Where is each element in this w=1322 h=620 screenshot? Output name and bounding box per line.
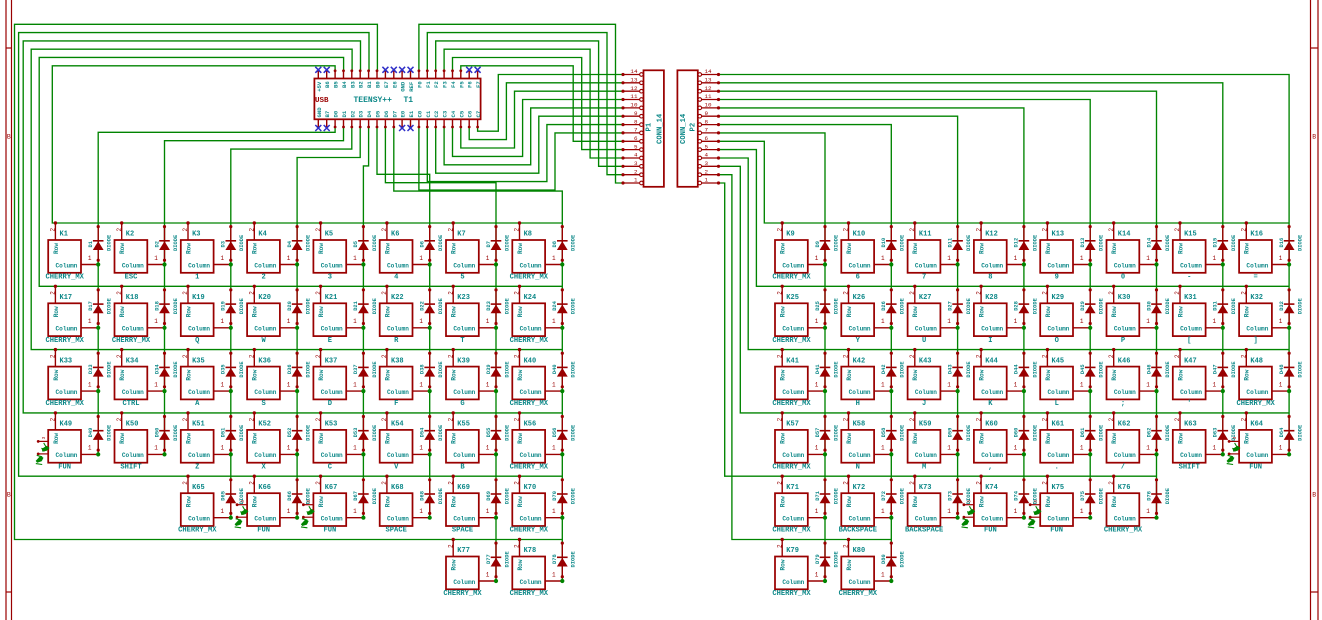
svg-text:K4: K4 [258,231,266,239]
svg-text:2: 2 [909,417,916,421]
svg-text:F1: F1 [425,81,432,88]
svg-text:1: 1 [947,318,951,325]
svg-text:Row: Row [517,433,524,444]
svg-text:Row: Row [1111,433,1118,444]
svg-text:D0: D0 [333,110,340,117]
svg-text:2: 2 [315,228,322,232]
svg-text:12: 12 [705,85,713,92]
svg-text:[: [ [1187,337,1191,345]
svg-text:Row: Row [119,369,126,380]
svg-text:1: 1 [1212,318,1216,325]
svg-text:K62: K62 [1118,421,1131,429]
svg-text:FUN: FUN [984,527,997,535]
svg-text:1: 1 [353,255,357,262]
svg-text:G: G [460,400,464,408]
svg-text:CHERRY_MX: CHERRY_MX [510,400,549,408]
svg-text:13: 13 [705,77,713,84]
svg-text:Column: Column [520,516,542,523]
svg-text:Column: Column [981,516,1003,523]
svg-text:H: H [856,400,860,408]
svg-text:9: 9 [705,110,709,117]
svg-text:1: 1 [1080,318,1084,325]
svg-text:2: 2 [1108,291,1115,295]
svg-text:D39: D39 [486,364,492,374]
svg-text:Row: Row [979,369,986,380]
svg-text:1: 1 [1279,381,1283,388]
svg-text:Row: Row [318,243,325,254]
svg-text:B3: B3 [349,81,356,88]
svg-text:K8: K8 [524,231,532,239]
svg-text:K45: K45 [1052,357,1065,365]
svg-text:DIODE: DIODE [571,487,577,504]
svg-text:Column: Column [915,389,937,396]
svg-text:3: 3 [1033,500,1039,503]
svg-text:DIODE: DIODE [372,361,378,378]
svg-text:B: B [1312,492,1316,499]
svg-text:B: B [7,134,11,141]
svg-text:D62: D62 [1146,428,1152,438]
svg-text:T1: T1 [404,96,414,105]
svg-text:Row: Row [451,433,458,444]
svg-text:1: 1 [815,445,819,452]
svg-text:1: 1 [815,508,819,515]
svg-text:K44: K44 [985,357,998,365]
svg-text:Row: Row [846,243,853,254]
svg-text:K47: K47 [1184,357,1197,365]
svg-text:1: 1 [1014,381,1018,388]
svg-text:Row: Row [185,433,192,444]
svg-text:Row: Row [846,369,853,380]
svg-text:DIODE: DIODE [107,361,113,378]
svg-text:K36: K36 [258,357,271,365]
svg-text:DIODE: DIODE [1032,297,1038,314]
svg-text:F0: F0 [416,81,423,88]
svg-text:Row: Row [912,433,919,444]
svg-text:5: 5 [705,143,709,150]
svg-text:DIODE: DIODE [571,361,577,378]
svg-text:Row: Row [53,243,60,254]
svg-text:1: 1 [1212,255,1216,262]
svg-text:K29: K29 [1052,294,1065,302]
svg-text:3: 3 [634,160,638,167]
svg-text:1: 1 [486,255,490,262]
svg-text:2: 2 [975,481,982,485]
svg-text:F2: F2 [433,81,440,88]
svg-text:K80: K80 [853,547,866,555]
svg-text:CHERRY_MX: CHERRY_MX [510,463,549,471]
svg-text:Row: Row [252,433,259,444]
svg-text:DIODE: DIODE [966,297,972,314]
svg-text:1: 1 [815,255,819,262]
svg-text:2: 2 [634,168,638,175]
svg-text:1: 1 [1146,445,1150,452]
svg-text:1: 1 [486,381,490,388]
svg-text:2: 2 [776,544,783,548]
svg-text:1: 1 [1080,508,1084,515]
svg-text:K56: K56 [524,421,537,429]
svg-text:1: 1 [815,571,819,578]
svg-text:K21: K21 [325,294,338,302]
svg-text:K77: K77 [457,547,470,555]
svg-text:J: J [922,400,926,408]
svg-text:2: 2 [1042,354,1049,358]
svg-text:C4: C4 [450,110,457,117]
svg-text:2: 2 [1241,291,1248,295]
svg-text:1: 1 [220,508,224,515]
svg-text:Column: Column [981,326,1003,333]
svg-text:1: 1 [88,255,92,262]
svg-text:1: 1 [552,508,556,515]
svg-text:Row: Row [1177,369,1184,380]
svg-text:D: D [328,400,332,408]
svg-text:K31: K31 [1184,294,1197,302]
svg-text:2: 2 [909,228,916,232]
svg-text:11: 11 [630,93,638,100]
svg-text:1: 1 [1014,508,1018,515]
svg-text:3: 3 [967,500,973,503]
svg-text:Column: Column [1180,452,1202,459]
svg-text:SHIFT: SHIFT [1179,463,1201,471]
svg-text:1: 1 [634,177,638,184]
svg-text:K43: K43 [919,357,932,365]
svg-text:Row: Row [53,369,60,380]
svg-text:Row: Row [1045,243,1052,254]
svg-text:2: 2 [116,228,123,232]
svg-text:Row: Row [1045,306,1052,317]
svg-text:C: C [328,463,333,471]
svg-text:,: , [988,463,992,471]
svg-text:D77: D77 [486,554,492,564]
svg-text:D8: D8 [552,241,558,247]
svg-text:D3: D3 [358,110,365,117]
svg-text:DIODE: DIODE [1165,361,1171,378]
svg-text:DIODE: DIODE [900,234,906,251]
svg-text:Row: Row [119,243,126,254]
svg-text:F: F [394,400,398,408]
svg-text:D22: D22 [420,301,426,311]
svg-text:7: 7 [922,274,926,282]
svg-text:1: 1 [815,318,819,325]
svg-text:DIODE: DIODE [306,297,312,314]
svg-text:K10: K10 [853,231,866,239]
svg-text:CHERRY_MX: CHERRY_MX [1236,400,1275,408]
svg-text:D4: D4 [366,110,373,117]
svg-text:8: 8 [705,118,709,125]
svg-text:B5: B5 [333,81,340,88]
svg-text:Row: Row [384,433,391,444]
svg-text:CHERRY_MX: CHERRY_MX [112,337,151,345]
svg-text:1: 1 [88,445,92,452]
svg-text:CHERRY_MX: CHERRY_MX [772,463,811,471]
svg-text:DIODE: DIODE [833,361,839,378]
svg-text:DIODE: DIODE [107,424,113,441]
svg-text:2: 2 [514,354,521,358]
svg-text:D2: D2 [349,110,356,117]
svg-text:DIODE: DIODE [438,487,444,504]
svg-text:Row: Row [1177,433,1184,444]
svg-text:B4: B4 [341,81,348,88]
svg-text:Row: Row [185,496,192,507]
svg-text:FUN: FUN [324,527,337,535]
svg-text:K3: K3 [192,231,200,239]
svg-text:D74: D74 [1014,490,1020,500]
svg-text:D5: D5 [375,110,382,117]
svg-text:K15: K15 [1184,231,1197,239]
svg-text:Column: Column [1180,262,1202,269]
svg-text:Row: Row [1111,369,1118,380]
svg-text:1: 1 [353,381,357,388]
svg-text:Column: Column [188,326,210,333]
svg-text:2: 2 [1174,228,1181,232]
svg-text:CHERRY_MX: CHERRY_MX [510,527,549,535]
svg-text:K19: K19 [192,294,205,302]
svg-text:Column: Column [387,516,409,523]
svg-text:D45: D45 [1080,364,1086,374]
svg-text:K63: K63 [1184,421,1197,429]
svg-text:13: 13 [630,77,638,84]
svg-text:Column: Column [1246,262,1268,269]
svg-text:1: 1 [486,445,490,452]
svg-text:FUN: FUN [1050,527,1063,535]
svg-text:1: 1 [1279,318,1283,325]
svg-text:E0: E0 [400,110,407,117]
svg-text:1: 1 [1080,445,1084,452]
svg-text:4: 4 [705,152,709,159]
svg-text:Column: Column [520,262,542,269]
svg-text:2: 2 [514,417,521,421]
svg-text:2: 2 [1108,228,1115,232]
svg-text:1: 1 [947,445,951,452]
svg-text:C6: C6 [467,110,474,117]
svg-text:DIODE: DIODE [966,234,972,251]
svg-text:Column: Column [849,579,871,586]
svg-text:DIODE: DIODE [438,424,444,441]
svg-text:2: 2 [1174,291,1181,295]
svg-text:USB: USB [315,97,329,105]
svg-text:2: 2 [975,291,982,295]
svg-text:2: 2 [50,354,57,358]
svg-text:Column: Column [981,452,1003,459]
svg-text:K41: K41 [786,357,799,365]
svg-text:X: X [261,463,266,471]
svg-text:D61: D61 [1080,428,1086,438]
svg-text:DIODE: DIODE [504,487,510,504]
svg-text:DIODE: DIODE [504,551,510,568]
svg-text:D35: D35 [221,364,227,374]
svg-text:D15: D15 [1213,238,1219,248]
svg-text:2: 2 [116,291,123,295]
svg-text:DIODE: DIODE [173,234,179,251]
svg-text:2: 2 [1042,291,1049,295]
svg-text:D13: D13 [1080,238,1086,248]
svg-text:2: 2 [843,354,850,358]
svg-text:Column: Column [849,389,871,396]
svg-text:10: 10 [630,102,638,109]
svg-text:2: 2 [182,481,189,485]
svg-text:1: 1 [947,255,951,262]
svg-text:2: 2 [776,481,783,485]
svg-text:7: 7 [705,127,709,134]
svg-text:1: 1 [220,381,224,388]
svg-text:D50: D50 [154,428,160,438]
svg-text:Row: Row [912,496,919,507]
svg-text:Row: Row [318,496,325,507]
svg-text:DIODE: DIODE [900,551,906,568]
svg-text:2: 2 [116,417,123,421]
svg-text:1: 1 [154,255,158,262]
svg-text:B: B [460,463,465,471]
svg-text:DIODE: DIODE [1099,424,1105,441]
svg-text:Column: Column [453,326,475,333]
svg-text:K58: K58 [853,421,866,429]
svg-text:L: L [1055,400,1059,408]
svg-text:2: 2 [381,354,388,358]
svg-text:K34: K34 [126,357,139,365]
svg-text:Row: Row [780,369,787,380]
svg-text:A: A [195,400,200,408]
svg-text:Row: Row [384,496,391,507]
svg-text:2: 2 [315,291,322,295]
svg-text:Column: Column [321,452,343,459]
svg-text:2: 2 [1042,481,1049,485]
svg-text:E7: E7 [383,81,390,88]
svg-text:1: 1 [881,381,885,388]
svg-text:Row: Row [384,306,391,317]
svg-text:D18: D18 [154,301,160,311]
svg-text:2: 2 [249,481,256,485]
svg-text:2: 2 [182,228,189,232]
svg-text:D64: D64 [1279,427,1285,437]
svg-text:K64: K64 [1250,421,1263,429]
svg-text:DIODE: DIODE [1032,361,1038,378]
svg-text:Column: Column [1114,262,1136,269]
svg-text:DIODE: DIODE [833,487,839,504]
svg-text:CHERRY_MX: CHERRY_MX [178,527,217,535]
svg-text:Column: Column [849,326,871,333]
svg-text:Column: Column [520,579,542,586]
svg-text:D14: D14 [1146,237,1152,247]
svg-text:D70: D70 [552,491,558,501]
svg-text:D73: D73 [947,491,953,501]
svg-text:Row: Row [1244,306,1251,317]
svg-text:I: I [988,337,992,345]
svg-text:2: 2 [1241,417,1248,421]
svg-text:CHERRY_MX: CHERRY_MX [772,337,811,345]
svg-text:1: 1 [881,571,885,578]
svg-text:K9: K9 [786,231,794,239]
svg-text:DIODE: DIODE [306,234,312,251]
svg-text:D32: D32 [1279,301,1285,311]
svg-text:K14: K14 [1118,231,1131,239]
svg-text:Row: Row [1244,369,1251,380]
svg-text:K55: K55 [457,421,470,429]
svg-text:11: 11 [705,93,713,100]
svg-text:CHERRY_MX: CHERRY_MX [510,590,549,598]
svg-text:1: 1 [220,318,224,325]
svg-text:]: ] [1253,337,1257,345]
svg-text:2: 2 [249,228,256,232]
svg-text:CHERRY_MX: CHERRY_MX [46,337,85,345]
svg-text:1: 1 [287,381,291,388]
svg-text:K46: K46 [1118,357,1131,365]
svg-text:DIODE: DIODE [504,297,510,314]
svg-text:Column: Column [1180,326,1202,333]
svg-text:Row: Row [252,369,259,380]
svg-text:C2: C2 [433,110,440,117]
svg-text:D51: D51 [221,428,227,438]
svg-text:2: 2 [1241,228,1248,232]
svg-text:K59: K59 [919,421,932,429]
svg-text:Row: Row [252,243,259,254]
svg-text:K27: K27 [919,294,932,302]
svg-text:Row: Row [780,433,787,444]
svg-text:1: 1 [1014,445,1018,452]
svg-text:K35: K35 [192,357,205,365]
svg-text:Column: Column [1048,389,1070,396]
svg-text:K74: K74 [985,484,998,492]
svg-text:2: 2 [1108,417,1115,421]
svg-text:7: 7 [634,127,638,134]
svg-text:D34: D34 [154,364,160,374]
svg-text:Row: Row [1244,243,1251,254]
svg-text:1: 1 [552,318,556,325]
svg-text:F4: F4 [450,81,457,88]
svg-text:2: 2 [447,417,454,421]
svg-text:Row: Row [451,243,458,254]
svg-text:D5: D5 [353,241,359,247]
svg-text:DIODE: DIODE [900,424,906,441]
svg-text:D36: D36 [287,364,293,374]
svg-text:1: 1 [220,255,224,262]
svg-text:Column: Column [254,326,276,333]
svg-text:5: 5 [460,274,464,282]
svg-text:D76: D76 [1146,491,1152,501]
svg-text:K26: K26 [853,294,866,302]
svg-text:/: / [1121,463,1125,471]
svg-text:DIODE: DIODE [239,361,245,378]
svg-text:Column: Column [782,516,804,523]
svg-text:2: 2 [843,481,850,485]
svg-text:2: 2 [116,354,123,358]
svg-text:K65: K65 [192,484,205,492]
svg-text:K7: K7 [457,231,465,239]
svg-text:DIODE: DIODE [504,424,510,441]
svg-text:2: 2 [1174,354,1181,358]
svg-text:D7: D7 [486,241,492,247]
svg-text:1: 1 [419,445,423,452]
svg-text:Row: Row [780,496,787,507]
svg-text:1: 1 [220,445,224,452]
svg-text:Row: Row [517,369,524,380]
svg-text:1: 1 [287,508,291,515]
svg-text:': ' [1187,400,1191,408]
svg-text:Column: Column [915,516,937,523]
svg-text:D60: D60 [1014,428,1020,438]
svg-text:CHERRY_MX: CHERRY_MX [46,400,85,408]
svg-text:CHERRY_MX: CHERRY_MX [772,400,811,408]
svg-text:2: 2 [705,168,709,175]
svg-text:DIODE: DIODE [900,487,906,504]
svg-text:D25: D25 [815,301,821,311]
svg-text:DIODE: DIODE [504,234,510,251]
svg-text:Column: Column [1114,326,1136,333]
svg-text:6: 6 [856,274,860,282]
svg-text:2: 2 [50,291,57,295]
svg-text:Column: Column [254,389,276,396]
svg-text:2: 2 [261,274,265,282]
svg-text:CHERRY_MX: CHERRY_MX [772,274,811,282]
svg-text:D10: D10 [881,238,887,248]
